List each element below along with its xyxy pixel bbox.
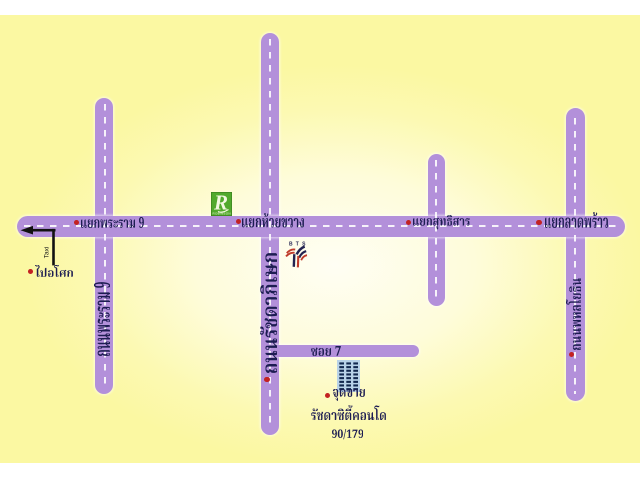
svg-text:ROBINSON: ROBINSON	[213, 212, 231, 216]
